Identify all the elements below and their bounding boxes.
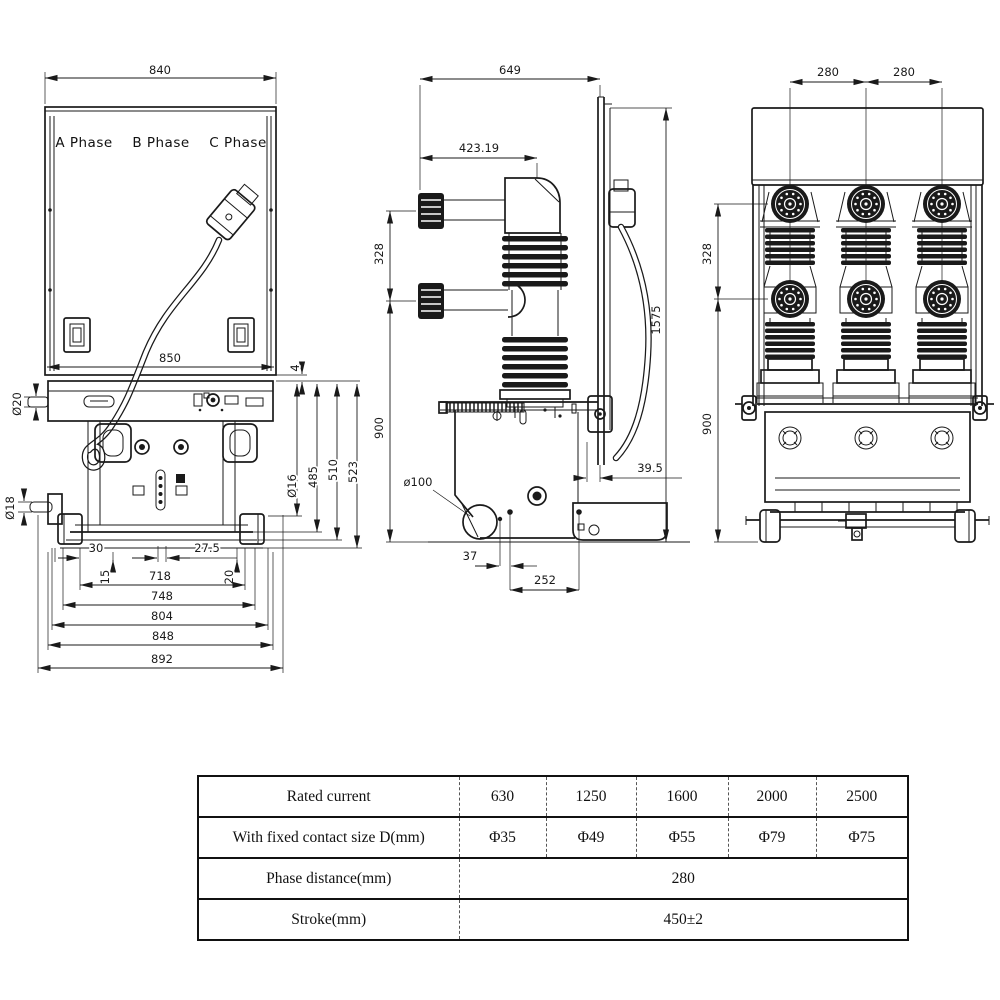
dimension-label: 850 (159, 351, 181, 365)
dimension-label: 718 (149, 569, 171, 583)
dimension-label: 423.19 (459, 141, 499, 155)
secondary-plug-side (609, 180, 635, 227)
dimension-label: 840 (149, 63, 171, 77)
rated-current-value: 630 (459, 776, 546, 817)
phase-c-label: C Phase (209, 135, 267, 151)
dimension-label: 280 (817, 65, 839, 79)
dimension-label: 804 (151, 609, 173, 623)
dimension-label: 252 (534, 573, 556, 587)
panel-handle-right (228, 318, 254, 352)
technical-drawing: 840 A Phase B Phase C Phase (0, 0, 1000, 760)
contact-size-value: Φ55 (636, 817, 728, 858)
row-label: With fixed contact size D(mm) (198, 817, 459, 858)
phase-b-label: B Phase (132, 135, 189, 151)
control-cable-side (616, 227, 648, 458)
contact-size-value: Φ79 (728, 817, 816, 858)
dimension-label: 748 (151, 589, 173, 603)
rear-pole-b (833, 185, 899, 403)
stroke-value: 450±2 (459, 899, 908, 940)
rated-current-value: 1600 (636, 776, 728, 817)
rated-current-value: 2000 (728, 776, 816, 817)
side-view: 649 423.19 1575 (372, 63, 690, 590)
circuit-breaker-drawing-page: 840 A Phase B Phase C Phase (0, 0, 1000, 1000)
rated-current-value: 1250 (546, 776, 636, 817)
dimension-label: 39.5 (637, 461, 663, 475)
row-label: Phase distance(mm) (198, 858, 459, 899)
dimension-label: 848 (152, 629, 174, 643)
phase-distance-value: 280 (459, 858, 908, 899)
vacuum-pole-side (418, 178, 570, 418)
dimension-label: 15 (98, 570, 112, 585)
contact-size-value: Φ35 (459, 817, 546, 858)
fan-vent-c (931, 427, 953, 449)
dimension-label: 328 (372, 243, 386, 265)
dimension-label: 37 (463, 549, 478, 563)
secondary-plug (205, 180, 263, 241)
dimension-label: 20 (222, 570, 236, 585)
dimension-label: 280 (893, 65, 915, 79)
row-label: Stroke(mm) (198, 899, 459, 940)
dimension-label: 900 (372, 417, 386, 439)
front-view: 840 A Phase B Phase C Phase (3, 63, 362, 673)
table-row: Stroke(mm) 450±2 (198, 899, 908, 940)
contact-size-value: Φ75 (816, 817, 908, 858)
fan-vent-a (779, 427, 801, 449)
panel-handle-left (64, 318, 90, 352)
dimension-label: Ø16 (285, 474, 299, 498)
specification-table: Rated current 630 1250 1600 2000 2500 Wi… (197, 775, 909, 941)
table-row: Rated current 630 1250 1600 2000 2500 (198, 776, 908, 817)
contact-size-value: Φ49 (546, 817, 636, 858)
dimension-label: Ø20 (10, 392, 24, 416)
dimension-label: Ø18 (3, 496, 17, 520)
dimension-label: 328 (700, 243, 714, 265)
table-row: Phase distance(mm) 280 (198, 858, 908, 899)
dimension-label: ø100 (404, 475, 433, 489)
rear-pole-c (909, 185, 975, 403)
rear-view: 280 280 (700, 65, 994, 542)
row-label: Rated current (198, 776, 459, 817)
dimension-label: 4 (288, 364, 302, 371)
dimension-label: 649 (499, 63, 521, 77)
phase-a-label: A Phase (55, 135, 112, 151)
dimension-label: 900 (700, 413, 714, 435)
dimension-label: 892 (151, 652, 173, 666)
rated-current-value: 2500 (816, 776, 908, 817)
dimension-label: 485 (306, 466, 320, 488)
fan-vent-b (855, 427, 877, 449)
dimension-label: 510 (326, 459, 340, 481)
table-row: With fixed contact size D(mm) Φ35 Φ49 Φ5… (198, 817, 908, 858)
dimension-label: 523 (346, 461, 360, 483)
base-beam (746, 510, 989, 542)
dimension-label: 27.5 (194, 541, 220, 555)
rear-pole-a (757, 185, 823, 403)
dimension-label: 30 (89, 541, 104, 555)
